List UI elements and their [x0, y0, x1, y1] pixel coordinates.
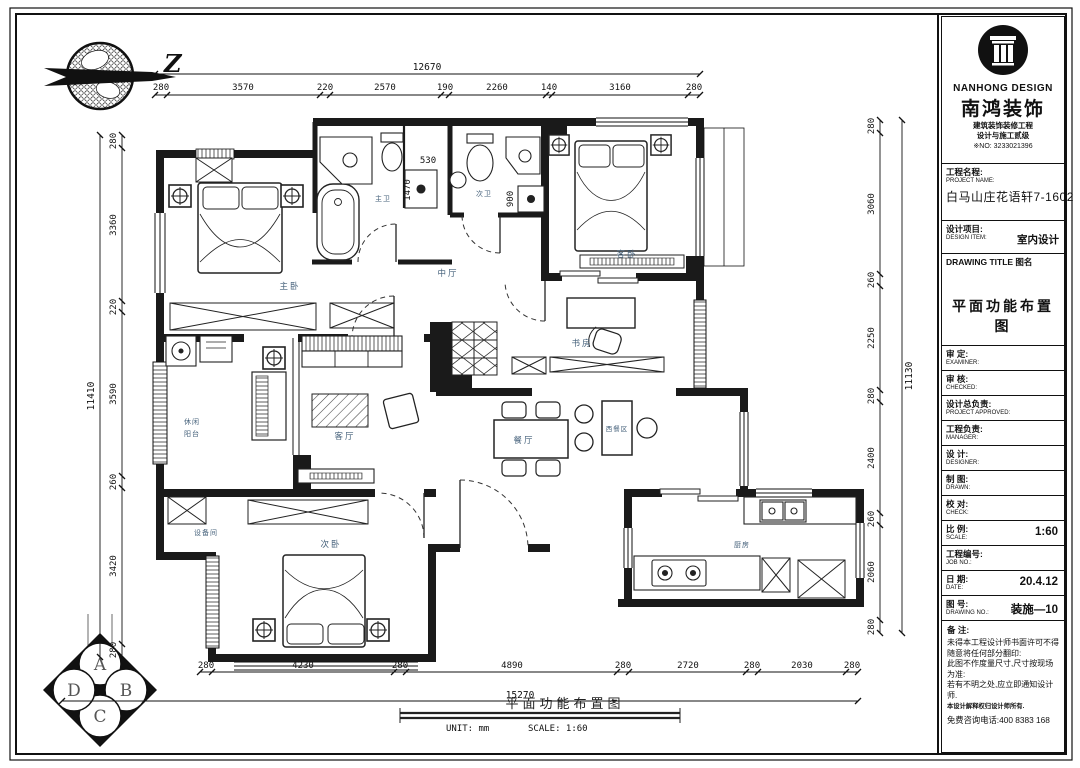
project-name-section: 工程名程: PROJECT NAME: 白马山庄花语轩7-1602	[942, 164, 1064, 221]
notes-label: 备 注:	[947, 625, 1059, 636]
badge-d: D	[67, 681, 81, 701]
dim: 3160	[609, 83, 631, 93]
inner-dim: 900	[506, 191, 516, 207]
closet	[196, 158, 232, 182]
dim: 2400	[867, 447, 877, 469]
dim: 190	[437, 83, 453, 93]
brand-line-1: 建筑装饰装修工程	[942, 121, 1064, 131]
row-project-approved: 设计总负责:PROJECT APPROVED:	[942, 396, 1064, 421]
dim-labels-top: 12670 280 3570 220 2570 190 2260 140 316…	[153, 62, 702, 93]
dim: 220	[109, 299, 119, 315]
dim-total-left: 11410	[86, 381, 97, 410]
brand-block: NANHONG DESIGN 南鸿装饰 建筑装饰装修工程 设计与施工贰级 ※NO…	[942, 17, 1064, 164]
row-drawing-no: 图 号:DRAWING NO.:装施—10	[942, 596, 1064, 621]
dim: 280	[744, 661, 760, 671]
drawing-sheet: Z A B C D	[0, 0, 1080, 768]
project-label-en: PROJECT NAME:	[946, 178, 1060, 184]
window	[622, 528, 634, 568]
rug	[312, 394, 368, 427]
dim: 3360	[109, 214, 119, 236]
dim: 3060	[867, 193, 877, 215]
project-name-value: 白马山庄花语轩7-1602	[946, 188, 1060, 205]
dim: 2060	[867, 561, 877, 583]
drawing-title-label: DRAWING TITLE 图名	[946, 256, 1060, 268]
accent-chair	[383, 393, 419, 429]
ceiling-lamp-icon	[651, 135, 671, 155]
ceiling-lamp-icon	[549, 135, 569, 155]
dim: 3590	[109, 383, 119, 405]
fridge	[798, 560, 845, 598]
drawing-title-section: DRAWING TITLE 图名 平面功能布置图	[942, 254, 1064, 346]
brand-line-2: 设计与施工贰级	[942, 131, 1064, 141]
window-hatch	[153, 362, 167, 464]
north-arrow: Z	[44, 43, 183, 109]
basin	[450, 172, 466, 188]
wardrobe	[330, 303, 394, 328]
room-label-balcony-2: 阳台	[184, 429, 200, 438]
second-bed	[283, 555, 365, 647]
dim: 2260	[486, 83, 508, 93]
title-block: NANHONG DESIGN 南鸿装饰 建筑装饰装修工程 设计与施工贰级 ※NO…	[941, 16, 1065, 753]
inner-dim: 530	[420, 156, 436, 166]
room-label-guest-bedroom: 客卧	[616, 249, 637, 260]
notes-section: 备 注: 未得本工程设计师书面许可不得 随意将任何部分翻印: 此图不作度量尺寸,…	[942, 621, 1064, 730]
dim-labels-right: 11130 280 3060 260 2250 280 2400 260 206…	[867, 118, 915, 635]
window	[596, 116, 688, 128]
room-label-master-bedroom: 主卧	[279, 281, 300, 292]
shower	[506, 137, 540, 174]
row-checked: 审 核:CHECKED:	[942, 371, 1064, 396]
design-item-value: 室内设计	[1017, 232, 1059, 247]
room-label-master-bath: 主卫	[375, 194, 391, 203]
dim: 4890	[501, 661, 523, 671]
equipment-box	[168, 497, 206, 524]
row-drawn: 制 图:DRAWN:	[942, 471, 1064, 496]
dim: 2030	[791, 661, 813, 671]
ceiling-lamp-icon	[169, 185, 191, 207]
cabinet	[512, 357, 546, 374]
dim: 3420	[109, 555, 119, 577]
ceiling-lamp-icon	[253, 619, 275, 641]
row-designer: 设 计:DESIGNER:	[942, 446, 1064, 471]
row-manager: 工程负责:MANAGER:	[942, 421, 1064, 446]
toilet	[381, 133, 403, 171]
caption-scale: SCALE: 1:60	[528, 724, 588, 734]
dim-labels-bottom: 15270 280 4230 280 4890 280 2720 280 203…	[198, 661, 860, 701]
row-check: 校 对:CHECK:	[942, 496, 1064, 521]
dim: 280	[392, 661, 408, 671]
inner-dim: 1470	[403, 179, 413, 201]
design-item-section: 设计项目: DESIGN ITEM: 室内设计	[942, 221, 1064, 254]
cabinet	[550, 357, 664, 372]
window-hatch	[694, 300, 706, 388]
dim: 280	[198, 661, 214, 671]
room-label-middle-hall: 中厅	[437, 268, 458, 279]
dim: 280	[844, 661, 860, 671]
signature-rows: 审 定:EXAMINER: 审 核:CHECKED: 设计总负责:PROJECT…	[942, 346, 1064, 621]
badge-a: A	[93, 655, 107, 675]
room-label-dining-room: 餐厅	[513, 436, 534, 446]
window	[738, 412, 750, 486]
wardrobe	[248, 500, 368, 524]
room-label-kitchen: 厨房	[734, 540, 750, 549]
dim: 280	[615, 661, 631, 671]
dim: 4230	[292, 661, 314, 671]
dim: 260	[109, 474, 119, 490]
dim: 140	[541, 83, 557, 93]
dim: 260	[867, 272, 877, 288]
dim: 280	[109, 642, 119, 658]
tv-cabinet	[298, 469, 374, 483]
dim-total-right: 11130	[904, 361, 915, 390]
room-label-second-bath: 次卫	[476, 189, 492, 198]
wardrobe	[170, 303, 316, 330]
vanity-sink	[518, 186, 544, 212]
sofa	[302, 336, 402, 367]
room-label-living-room: 客厅	[334, 431, 355, 442]
dim: 3570	[232, 83, 254, 93]
note-line: 未得本工程设计师书面许可不得	[947, 638, 1059, 649]
brand-cert-no: ※NO: 3233021396	[942, 142, 1064, 150]
window	[854, 523, 866, 578]
dim-total-top: 12670	[413, 62, 442, 73]
badge-c: C	[93, 707, 106, 727]
guest-bed	[575, 141, 647, 251]
hotline-number: 免费咨询电话:400 8383 168	[947, 715, 1059, 726]
caption-title: 平面功能布置图	[505, 697, 624, 712]
bay-window	[234, 662, 418, 670]
dim: 280	[686, 83, 702, 93]
dim: 280	[867, 619, 877, 635]
dim: 2720	[677, 661, 699, 671]
dim: 280	[867, 388, 877, 404]
project-label-cn: 工程名程:	[946, 166, 1060, 178]
dim: 2570	[374, 83, 396, 93]
dim: 280	[109, 133, 119, 149]
shower	[320, 137, 372, 184]
note-line: 此图不作度量尺寸,尺寸按现场	[947, 659, 1059, 670]
room-label-second-bedroom: 次卧	[320, 539, 341, 550]
dim: 280	[153, 83, 169, 93]
row-scale: 比 例:SCALE:1:60	[942, 521, 1064, 546]
shaft	[452, 322, 497, 375]
note-fine-print: 本设计解释权归设计师所有.	[947, 703, 1059, 711]
bathtub	[317, 184, 359, 260]
badge-b: B	[120, 681, 133, 701]
dim: 280	[867, 118, 877, 134]
nanhong-logo-icon	[977, 24, 1029, 76]
dim-labels-left: 11410 280 3360 220 3590 260 3420 280	[86, 133, 119, 658]
floor-plan-drawing: Z A B C D	[0, 0, 1080, 768]
row-date: 日 期:DATE:20.4.12	[942, 571, 1064, 596]
room-label-western-dining: 西餐区	[606, 424, 629, 433]
ceiling-lamp-icon	[263, 347, 285, 369]
ceiling-lamp-icon	[281, 185, 303, 207]
room-label-study: 书房	[571, 338, 592, 349]
room-label-equipment-room: 设备间	[194, 528, 218, 537]
note-line: 师.	[947, 691, 1059, 702]
drawing-title-value: 平面功能布置图	[946, 296, 1060, 336]
note-line: 随意将任何部分翻印:	[947, 649, 1059, 660]
dim: 220	[317, 83, 333, 93]
kitchen-cabinet	[762, 558, 790, 592]
window-hatch	[206, 556, 219, 648]
dim: 260	[867, 511, 877, 527]
row-examiner: 审 定:EXAMINER:	[942, 346, 1064, 371]
note-line: 若有不明之处,应立即通知设计	[947, 680, 1059, 691]
row-job-no: 工程编号:JOB NO.:	[942, 546, 1064, 571]
room-label-balcony-1: 休闲	[184, 417, 200, 426]
dim: 2250	[867, 327, 877, 349]
ceiling-lamp-icon	[367, 619, 389, 641]
brand-name-en: NANHONG DESIGN	[942, 83, 1064, 94]
window	[152, 213, 168, 293]
master-bed	[198, 183, 282, 273]
caption-unit: UNIT: mm	[446, 724, 489, 734]
drawing-caption: 平面功能布置图 UNIT: mm SCALE: 1:60	[400, 697, 680, 734]
note-line: 为准:	[947, 670, 1059, 681]
lounge-chaise	[252, 372, 286, 440]
toilet	[467, 134, 493, 181]
brand-name-cn: 南鸿装饰	[942, 94, 1064, 121]
